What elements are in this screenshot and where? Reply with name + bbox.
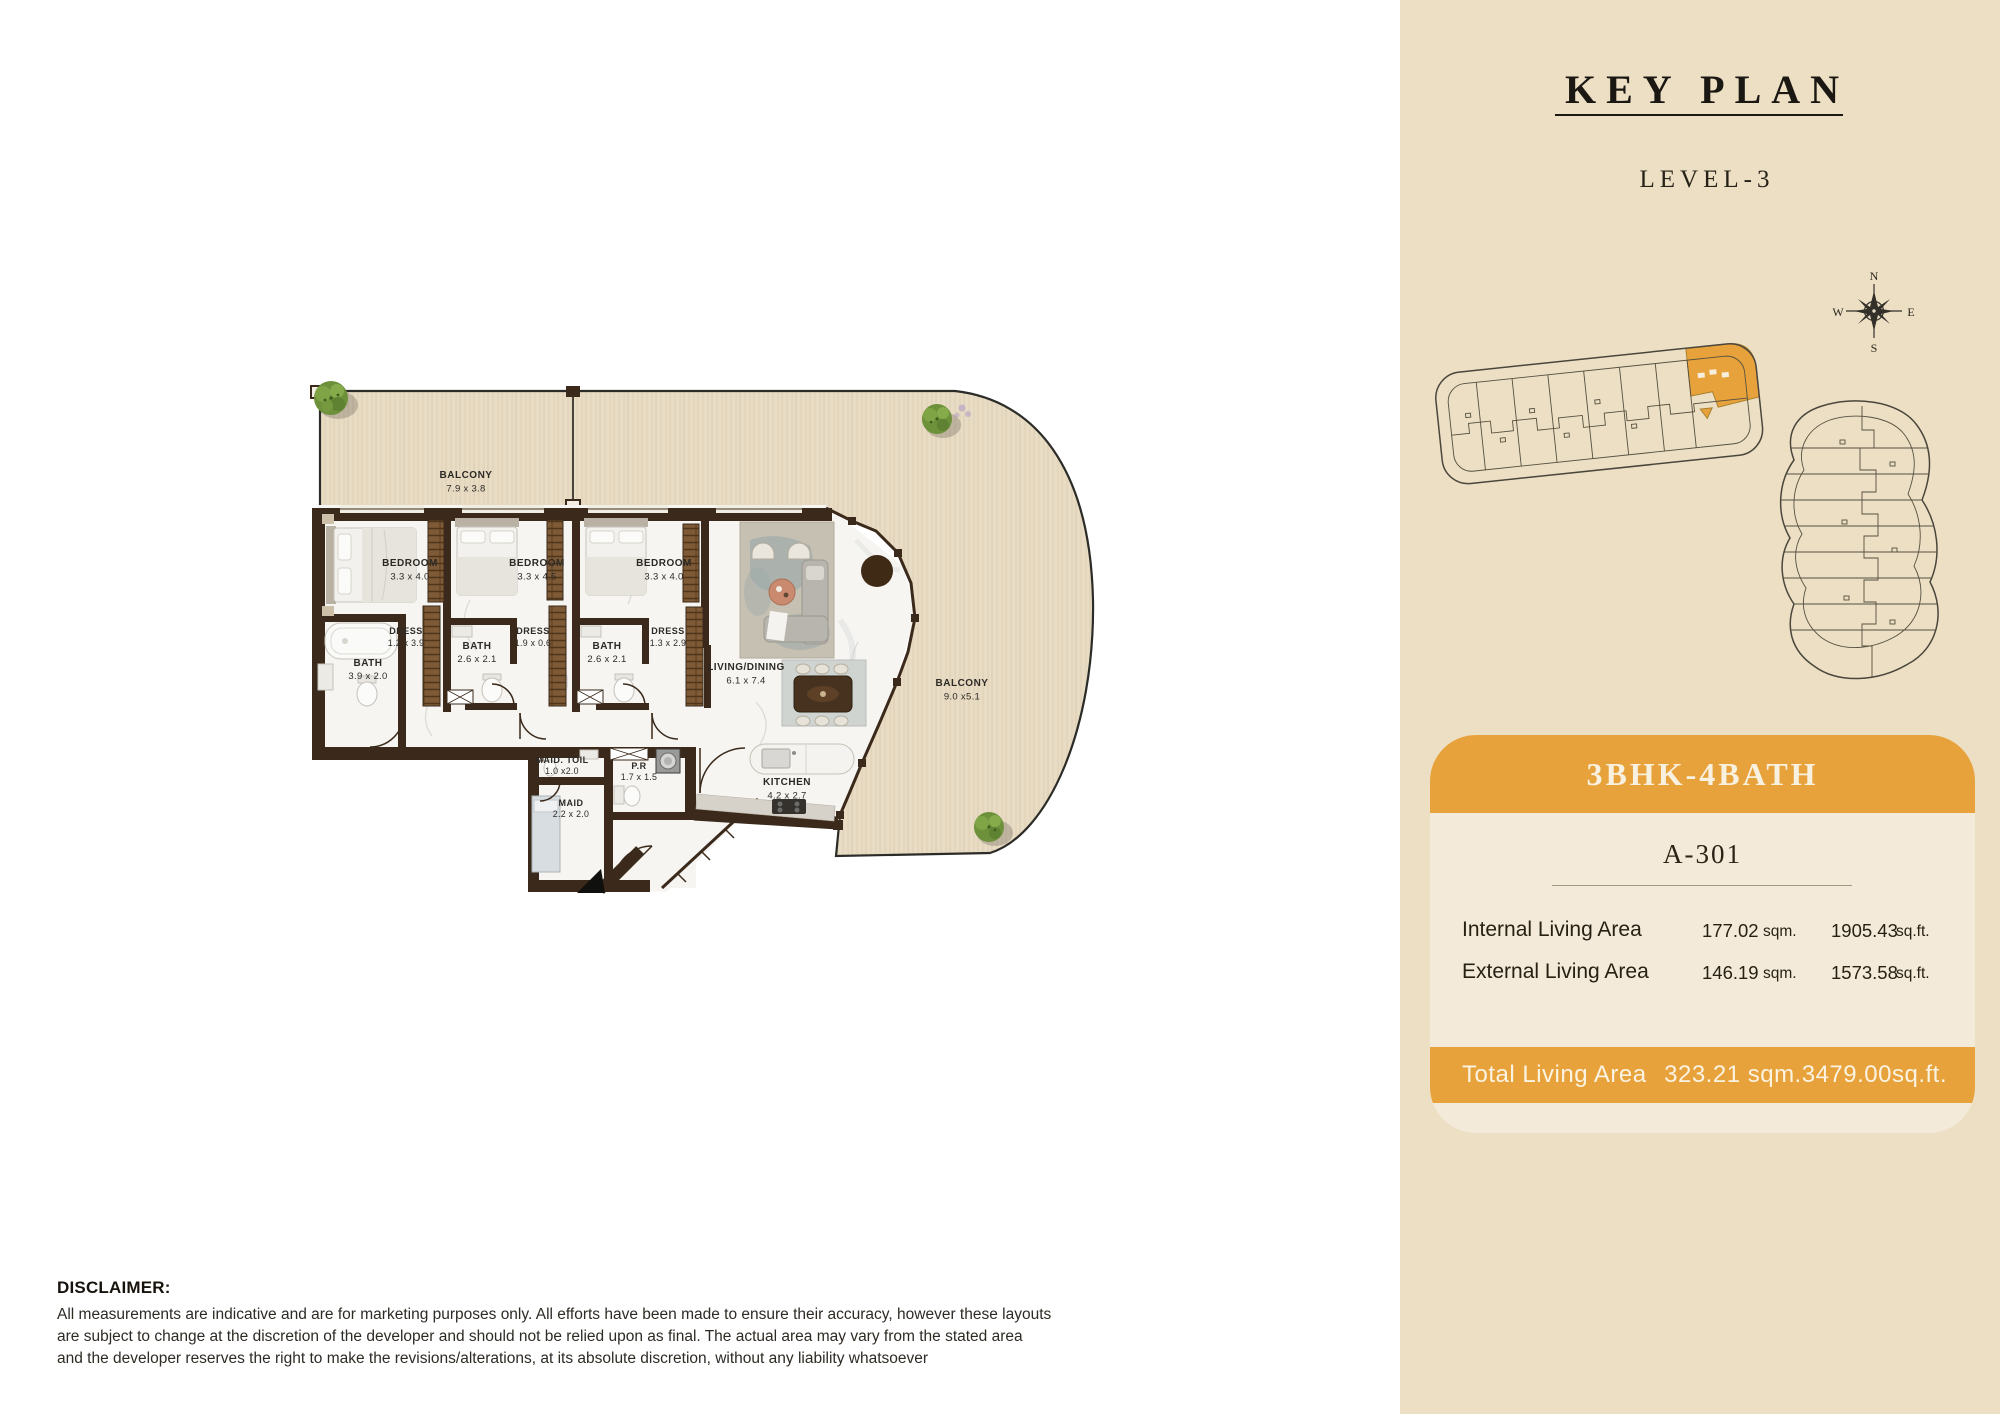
external-area-label: External Living Area xyxy=(1462,960,1649,984)
internal-area-sqm-unit: sqm. xyxy=(1763,923,1797,941)
shaft xyxy=(610,748,648,760)
shaft xyxy=(577,690,603,704)
disclaimer-line-1: All measurements are indicative and are … xyxy=(57,1304,1097,1326)
room-dims-dress-1: 1.2 x 3.9 xyxy=(388,638,424,648)
room-label-bedroom-1: BEDROOM xyxy=(382,558,438,569)
sink xyxy=(318,664,333,690)
room-label-dress-1: DRESS xyxy=(389,626,423,636)
wardrobe xyxy=(423,606,440,706)
maid-bed xyxy=(532,796,560,872)
room-label-bath-3: BATH xyxy=(592,641,621,652)
scene-svg: BALCONY 7.9 x 3.8 BEDROOM 3.3 x 4.0 BEDR… xyxy=(0,0,2000,1414)
room-dims-dress-2: 1.9 x 0.6 xyxy=(515,638,551,648)
total-living-area-label: Total Living Area xyxy=(1462,1061,1647,1089)
compass-icon: N S W E xyxy=(1832,269,1914,355)
room-dims-powder-room: 1.7 x 1.5 xyxy=(621,772,657,782)
kitchen-island xyxy=(750,744,854,774)
dining-set xyxy=(782,660,866,726)
wardrobe xyxy=(686,607,703,706)
room-dims-bath-1: 3.9 x 2.0 xyxy=(348,671,387,682)
room-label-kitchen: KITCHEN xyxy=(763,777,811,788)
compass-east-label: E xyxy=(1907,305,1914,319)
toilet xyxy=(624,786,640,806)
room-label-living-dining: LIVING/DINING xyxy=(707,662,785,673)
wardrobe xyxy=(549,606,566,706)
sink xyxy=(581,626,601,637)
room-label-bath-2: BATH xyxy=(462,641,491,652)
room-dims-dress-3: 1.3 x 2.9 xyxy=(650,638,686,648)
toilet xyxy=(614,674,634,702)
unit-number-underline xyxy=(1552,885,1852,886)
room-label-bedroom-2: BEDROOM xyxy=(509,558,565,569)
room-dims-bath-2: 2.6 x 2.1 xyxy=(457,654,496,665)
room-dims-balcony-top: 7.9 x 3.8 xyxy=(446,484,485,495)
key-plan-title-underline xyxy=(1555,114,1843,116)
room-label-bath-1: BATH xyxy=(353,658,382,669)
unit-info-card: 3BHK-4BATH A-301 Internal Living Area 17… xyxy=(1430,735,1975,1133)
room-dims-bedroom-3: 3.3 x 4.0 xyxy=(644,572,683,583)
compass-north-label: N xyxy=(1870,269,1879,283)
level-label: LEVEL-3 xyxy=(1412,166,2000,194)
room-label-dress-2: DRESS xyxy=(516,626,550,636)
sink xyxy=(452,626,472,637)
unit-number: A-301 xyxy=(1430,839,1975,870)
brochure-page: { "floorplan": { "rooms": [ {"id":"balco… xyxy=(0,0,2000,1414)
total-living-area-bar: Total Living Area 323.21 sqm.3479.00sq.f… xyxy=(1430,1047,1975,1103)
internal-area-label: Internal Living Area xyxy=(1462,918,1642,942)
total-living-area-value: 323.21 sqm.3479.00sq.ft. xyxy=(1664,1061,1947,1089)
room-dims-kitchen: 4.2 x 2.7 xyxy=(767,791,806,802)
compass-south-label: S xyxy=(1871,341,1878,355)
external-area-sqm-unit: sqm. xyxy=(1763,965,1797,983)
disclaimer-line-3: and the developer reserves the right to … xyxy=(57,1348,1097,1370)
unit-type-header: 3BHK-4BATH xyxy=(1430,735,1975,813)
disclaimer-title: DISCLAIMER: xyxy=(57,1278,1097,1298)
internal-area-sqm-value: 177.02 xyxy=(1702,920,1759,942)
bed-3 xyxy=(584,518,648,595)
room-dims-maid-toilet: 1.0 x2.0 xyxy=(545,766,579,776)
external-area-sqft-value: 1573.58 xyxy=(1831,962,1898,984)
bed-2 xyxy=(455,518,519,595)
room-label-balcony-right: BALCONY xyxy=(936,678,989,689)
room-dims-bedroom-2: 3.3 x 4.5 xyxy=(517,572,556,583)
room-label-bedroom-3: BEDROOM xyxy=(636,558,692,569)
external-living-area-row: External Living Area 146.19 sqm. 1573.58… xyxy=(1430,959,1975,987)
room-label-maid-toilet: MAID. TOIL xyxy=(535,755,588,765)
shaft xyxy=(447,690,473,704)
bathtub xyxy=(325,623,397,659)
sink xyxy=(614,786,624,804)
room-label-maid-room: MAID xyxy=(559,798,584,808)
key-plan-drawing: N S W E xyxy=(1433,269,1945,684)
compass-west-label: W xyxy=(1832,305,1844,319)
room-dims-bedroom-1: 3.3 x 4.0 xyxy=(390,572,429,583)
external-area-sqm-value: 146.19 xyxy=(1702,962,1759,984)
round-table xyxy=(861,555,893,587)
internal-living-area-row: Internal Living Area 177.02 sqm. 1905.43… xyxy=(1430,917,1975,945)
internal-area-sqft-unit: sq.ft. xyxy=(1896,923,1930,941)
room-dims-bath-3: 2.6 x 2.1 xyxy=(587,654,626,665)
key-plan-title: KEY PLAN xyxy=(1412,66,2000,113)
internal-area-sqft-value: 1905.43 xyxy=(1831,920,1898,942)
room-label-powder-room: P.R xyxy=(631,761,646,771)
toilet xyxy=(482,674,502,702)
room-label-balcony-top: BALCONY xyxy=(440,470,493,481)
room-dims-living-dining: 6.1 x 7.4 xyxy=(726,676,765,687)
washing-machine xyxy=(656,749,680,773)
coffee-table xyxy=(769,579,795,605)
room-label-dress-3: DRESS xyxy=(651,626,685,636)
disclaimer-block: DISCLAIMER: All measurements are indicat… xyxy=(57,1278,1097,1370)
key-plan-building-b xyxy=(1778,401,1945,684)
room-dims-balcony-right: 9.0 x5.1 xyxy=(944,692,980,703)
key-plan-building-a xyxy=(1433,341,1765,486)
external-area-sqft-unit: sq.ft. xyxy=(1896,965,1930,983)
disclaimer-line-2: are subject to change at the discretion … xyxy=(57,1326,1097,1348)
room-dims-maid-room: 2.2 x 2.0 xyxy=(553,809,589,819)
floor-plan: BALCONY 7.9 x 3.8 BEDROOM 3.3 x 4.0 BEDR… xyxy=(311,381,1093,893)
